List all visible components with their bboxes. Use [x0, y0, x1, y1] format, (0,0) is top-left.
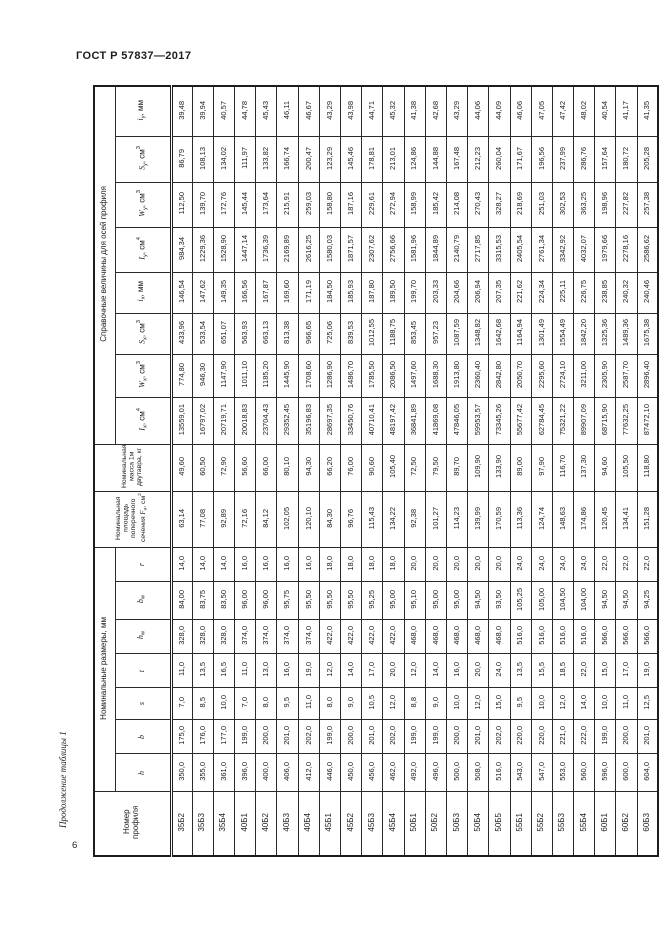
cell-bw-19: 104,00 [574, 581, 595, 619]
table-row-r: Номинальные размеры, ммr14,014,014,016,0… [94, 547, 658, 581]
cell-Wy-19: 363,25 [574, 182, 595, 227]
cell-b-2: 177,0 [213, 719, 234, 753]
cell-Sy-10: 213,01 [383, 136, 404, 182]
cell-mass-12: 79,50 [425, 444, 446, 491]
cell-h-15: 516,0 [489, 753, 510, 791]
cell-Ix-0: 13559,01 [171, 397, 192, 444]
cell-t-0: 11,0 [171, 653, 192, 687]
cell-b-10: 202,0 [383, 719, 404, 753]
table-row-Wy: Wy, см3112,50139,70172,76145,44173,64215… [94, 182, 658, 227]
cell-s-15: 15,0 [489, 687, 510, 719]
table-row-Sx: Sx, см3433,96533,54651,07563,93663,13813… [94, 313, 658, 354]
cell-h-5: 406,0 [277, 753, 298, 791]
cell-area-5: 102,05 [277, 491, 298, 547]
row-header-area: Номинальная площадь поперечного сечения … [94, 491, 171, 547]
cell-mass-9: 90,60 [362, 444, 383, 491]
cell-r-17: 24,0 [531, 547, 552, 581]
cell-hw-18: 516,0 [552, 619, 573, 653]
row-header-Iy: Iy, см4 [115, 227, 171, 272]
cell-t-13: 16,0 [446, 653, 467, 687]
cell-r-8: 18,0 [341, 547, 362, 581]
cell-Wx-9: 1785,50 [362, 354, 383, 397]
cell-h-20: 596,0 [595, 753, 616, 791]
cell-h-12: 496,0 [425, 753, 446, 791]
cell-r-13: 20,0 [446, 547, 467, 581]
cell-t-15: 24,0 [489, 653, 510, 687]
cell-iy-3: 44,78 [235, 86, 256, 136]
cell-Sy-4: 133,82 [256, 136, 277, 182]
table-row-iy: Справочные величины для осей профиляiy, … [94, 86, 658, 136]
cell-Wx-14: 2360,40 [468, 354, 489, 397]
cell-Sy-22: 205,28 [637, 136, 658, 182]
cell-t-7: 12,0 [319, 653, 340, 687]
cell-s-7: 8,0 [319, 687, 340, 719]
cell-Wy-14: 270,43 [468, 182, 489, 227]
cell-t-11: 12,0 [404, 653, 425, 687]
cell-area-14: 139,99 [468, 491, 489, 547]
row-header-profile: Номер профиля [94, 791, 171, 856]
cell-r-10: 18,0 [383, 547, 404, 581]
cell-h-3: 396,0 [235, 753, 256, 791]
cell-b-1: 176,0 [192, 719, 213, 753]
cell-Sx-13: 1087,59 [446, 313, 467, 354]
cell-Ix-12: 41869,08 [425, 397, 446, 444]
cell-area-15: 170,59 [489, 491, 510, 547]
cell-ix-13: 204,66 [446, 272, 467, 313]
cell-Ix-5: 29352,45 [277, 397, 298, 444]
cell-ix-8: 185,93 [341, 272, 362, 313]
cell-Sx-7: 725,06 [319, 313, 340, 354]
table-row-Wx: Wx, см3774,80946,301147,901011,101185,20… [94, 354, 658, 397]
cell-area-4: 84,12 [256, 491, 277, 547]
cell-Ix-22: 87472,10 [637, 397, 658, 444]
cell-Wx-7: 1286,90 [319, 354, 340, 397]
cell-b-4: 200,0 [256, 719, 277, 753]
cell-t-3: 11,0 [235, 653, 256, 687]
cell-profile-8: 45Б2 [341, 791, 362, 856]
cell-area-7: 84,30 [319, 491, 340, 547]
cell-Wy-2: 172,76 [213, 182, 234, 227]
cell-Ix-8: 33450,76 [341, 397, 362, 444]
cell-bw-16: 105,25 [510, 581, 531, 619]
cell-area-20: 120,45 [595, 491, 616, 547]
cell-b-17: 220,0 [531, 719, 552, 753]
cell-iy-13: 43,29 [446, 86, 467, 136]
cell-bw-13: 95,00 [446, 581, 467, 619]
cell-iy-7: 43,29 [319, 86, 340, 136]
cell-h-14: 508,0 [468, 753, 489, 791]
cell-Wy-4: 173,64 [256, 182, 277, 227]
cell-Sy-9: 178,81 [362, 136, 383, 182]
document-page: ГОСТ Р 57837—2017 Продолжение таблицы 1 … [0, 0, 661, 935]
row-header-ix: ix, мм [115, 272, 171, 313]
cell-hw-3: 374,0 [235, 619, 256, 653]
cell-ix-2: 149,35 [213, 272, 234, 313]
cell-r-12: 20,0 [425, 547, 446, 581]
cell-mass-4: 66,00 [256, 444, 277, 491]
cell-b-6: 202,0 [298, 719, 319, 753]
cell-mass-18: 116,70 [552, 444, 573, 491]
cell-s-4: 8,0 [256, 687, 277, 719]
cell-Wy-0: 112,50 [171, 182, 192, 227]
cell-b-14: 201,0 [468, 719, 489, 753]
table-row-t: t11,013,516,511,013,016,019,012,014,017,… [94, 653, 658, 687]
cell-ix-0: 146,54 [171, 272, 192, 313]
cell-Ix-14: 59953,57 [468, 397, 489, 444]
cell-Sx-10: 1188,75 [383, 313, 404, 354]
cell-Iy-3: 1447,14 [235, 227, 256, 272]
cell-Iy-14: 2717,85 [468, 227, 489, 272]
cell-area-10: 134,22 [383, 491, 404, 547]
cell-h-1: 355,0 [192, 753, 213, 791]
cell-iy-18: 47,42 [552, 86, 573, 136]
main-table: Справочные величины для осей профиляiy, … [93, 85, 659, 857]
cell-mass-16: 89,00 [510, 444, 531, 491]
cell-Iy-5: 2169,89 [277, 227, 298, 272]
cell-Wx-15: 2842,80 [489, 354, 510, 397]
cell-h-21: 600,0 [616, 753, 637, 791]
cell-iy-16: 46,06 [510, 86, 531, 136]
cell-bw-4: 96,00 [256, 581, 277, 619]
cell-Iy-21: 2278,16 [616, 227, 637, 272]
cell-Iy-2: 1528,90 [213, 227, 234, 272]
cell-area-17: 124,74 [531, 491, 552, 547]
cell-s-14: 12,0 [468, 687, 489, 719]
row-header-b: b [115, 719, 171, 753]
cell-bw-10: 95,00 [383, 581, 404, 619]
cell-mass-22: 118,80 [637, 444, 658, 491]
cell-profile-11: 50Б1 [404, 791, 425, 856]
cell-iy-15: 44,09 [489, 86, 510, 136]
cell-Sy-11: 124,86 [404, 136, 425, 182]
cell-ix-7: 184,50 [319, 272, 340, 313]
cell-Ix-15: 73345,26 [489, 397, 510, 444]
cell-b-18: 221,0 [552, 719, 573, 753]
cell-mass-14: 109,90 [468, 444, 489, 491]
cell-hw-22: 566,0 [637, 619, 658, 653]
cell-Sx-1: 533,54 [192, 313, 213, 354]
cell-r-15: 20,0 [489, 547, 510, 581]
cell-s-2: 10,0 [213, 687, 234, 719]
cell-Wy-8: 187,16 [341, 182, 362, 227]
cell-Iy-7: 1580,03 [319, 227, 340, 272]
cell-Sx-11: 853,45 [404, 313, 425, 354]
cell-Iy-10: 2756,66 [383, 227, 404, 272]
cell-hw-11: 468,0 [404, 619, 425, 653]
cell-r-2: 14,0 [213, 547, 234, 581]
cell-Wy-7: 158,80 [319, 182, 340, 227]
cell-Sy-7: 123,29 [319, 136, 340, 182]
cell-bw-2: 83,50 [213, 581, 234, 619]
cell-profile-12: 50Б2 [425, 791, 446, 856]
cell-Sy-2: 134,02 [213, 136, 234, 182]
cell-bw-8: 95,50 [341, 581, 362, 619]
cell-Iy-9: 2307,62 [362, 227, 383, 272]
cell-Sx-18: 1554,49 [552, 313, 573, 354]
cell-r-22: 22,0 [637, 547, 658, 581]
cell-t-21: 17,0 [616, 653, 637, 687]
row-header-Wy: Wy, см3 [115, 182, 171, 227]
cell-Wx-19: 3211,00 [574, 354, 595, 397]
cell-hw-4: 374,0 [256, 619, 277, 653]
cell-bw-7: 95,50 [319, 581, 340, 619]
cell-ix-20: 238,85 [595, 272, 616, 313]
cell-Iy-18: 3342,92 [552, 227, 573, 272]
cell-Iy-0: 984,34 [171, 227, 192, 272]
cell-s-9: 10,5 [362, 687, 383, 719]
cell-ix-21: 240,32 [616, 272, 637, 313]
cell-mass-5: 80,10 [277, 444, 298, 491]
cell-hw-19: 516,0 [574, 619, 595, 653]
cell-Sx-16: 1164,94 [510, 313, 531, 354]
cell-Sy-1: 108,13 [192, 136, 213, 182]
cell-Ix-9: 40710,41 [362, 397, 383, 444]
cell-r-18: 24,0 [552, 547, 573, 581]
cell-profile-10: 45Б4 [383, 791, 404, 856]
cell-profile-18: 55Б3 [552, 791, 573, 856]
cell-h-10: 462,0 [383, 753, 404, 791]
cell-Wy-3: 145,44 [235, 182, 256, 227]
cell-h-0: 350,0 [171, 753, 192, 791]
cell-Sy-8: 145,46 [341, 136, 362, 182]
cell-bw-9: 95,25 [362, 581, 383, 619]
table-row-b: b175,0176,0177,0199,0200,0201,0202,0199,… [94, 719, 658, 753]
cell-Wx-3: 1011,10 [235, 354, 256, 397]
cell-Ix-3: 20018,83 [235, 397, 256, 444]
cell-bw-14: 94,50 [468, 581, 489, 619]
cell-profile-22: 60Б3 [637, 791, 658, 856]
cell-h-19: 560,0 [574, 753, 595, 791]
table-continuation-caption: Продолжение таблицы 1 [58, 708, 68, 828]
cell-s-6: 11,0 [298, 687, 319, 719]
cell-profile-13: 50Б3 [446, 791, 467, 856]
cell-mass-8: 76,00 [341, 444, 362, 491]
cell-bw-18: 104,50 [552, 581, 573, 619]
cell-Sy-0: 86,79 [171, 136, 192, 182]
cell-area-2: 92,89 [213, 491, 234, 547]
cell-Sy-20: 157,64 [595, 136, 616, 182]
cell-Wx-4: 1185,20 [256, 354, 277, 397]
cell-iy-5: 46,11 [277, 86, 298, 136]
cell-Sx-0: 433,96 [171, 313, 192, 354]
cell-mass-13: 89,70 [446, 444, 467, 491]
cell-ix-4: 167,87 [256, 272, 277, 313]
cell-area-19: 174,86 [574, 491, 595, 547]
cell-b-19: 222,0 [574, 719, 595, 753]
cell-b-13: 200,0 [446, 719, 467, 753]
cell-area-16: 113,36 [510, 491, 531, 547]
cell-mass-11: 72,50 [404, 444, 425, 491]
cell-Sy-16: 171,67 [510, 136, 531, 182]
cell-Sx-12: 957,23 [425, 313, 446, 354]
cell-t-20: 15,0 [595, 653, 616, 687]
cell-Iy-19: 4032,07 [574, 227, 595, 272]
cell-b-22: 201,0 [637, 719, 658, 753]
cell-b-15: 202,0 [489, 719, 510, 753]
cell-Wy-5: 215,91 [277, 182, 298, 227]
cell-Wx-5: 1445,90 [277, 354, 298, 397]
cell-Iy-6: 2616,25 [298, 227, 319, 272]
row-header-r: r [115, 547, 171, 581]
cell-h-16: 543,0 [510, 753, 531, 791]
cell-s-5: 9,5 [277, 687, 298, 719]
cell-Wy-1: 139,70 [192, 182, 213, 227]
cell-t-9: 17,0 [362, 653, 383, 687]
cell-t-12: 14,0 [425, 653, 446, 687]
cell-bw-0: 84,00 [171, 581, 192, 619]
cell-Iy-8: 1871,57 [341, 227, 362, 272]
cell-mass-15: 133,90 [489, 444, 510, 491]
row-header-iy: iy, мм [115, 86, 171, 136]
cell-s-22: 12,5 [637, 687, 658, 719]
table-row-Ix: Ix, см413559,0116797,0220719,7120018,832… [94, 397, 658, 444]
cell-mass-6: 94,30 [298, 444, 319, 491]
cell-Wx-0: 774,80 [171, 354, 192, 397]
cell-hw-10: 422,0 [383, 619, 404, 653]
cell-Wy-21: 227,82 [616, 182, 637, 227]
cell-profile-21: 60Б2 [616, 791, 637, 856]
cell-Iy-16: 2405,54 [510, 227, 531, 272]
cell-Sx-19: 1842,20 [574, 313, 595, 354]
cell-b-9: 201,0 [362, 719, 383, 753]
cell-Wx-17: 2295,60 [531, 354, 552, 397]
cell-bw-15: 93,50 [489, 581, 510, 619]
cell-Ix-16: 55677,42 [510, 397, 531, 444]
row-header-hw: hw [115, 619, 171, 653]
cell-b-7: 199,0 [319, 719, 340, 753]
cell-Wx-13: 1913,80 [446, 354, 467, 397]
cell-mass-17: 97,90 [531, 444, 552, 491]
cell-hw-5: 374,0 [277, 619, 298, 653]
cell-Wx-16: 2050,70 [510, 354, 531, 397]
cell-area-11: 92,38 [404, 491, 425, 547]
cell-s-13: 10,0 [446, 687, 467, 719]
table-row-Sy: Sy, см386,79108,13134,02111,97133,82166,… [94, 136, 658, 182]
cell-profile-2: 35Б4 [213, 791, 234, 856]
row-header-s: s [115, 687, 171, 719]
cell-iy-22: 41,35 [637, 86, 658, 136]
cell-Sx-3: 563,93 [235, 313, 256, 354]
cell-r-0: 14,0 [171, 547, 192, 581]
cell-r-1: 14,0 [192, 547, 213, 581]
cell-Iy-12: 1844,89 [425, 227, 446, 272]
cell-b-12: 199,0 [425, 719, 446, 753]
cell-s-12: 9,0 [425, 687, 446, 719]
page-number: 6 [72, 840, 77, 851]
cell-Wx-6: 1708,60 [298, 354, 319, 397]
cell-b-20: 199,0 [595, 719, 616, 753]
cell-hw-9: 422,0 [362, 619, 383, 653]
cell-b-8: 200,0 [341, 719, 362, 753]
cell-profile-1: 35Б3 [192, 791, 213, 856]
cell-Ix-4: 23704,43 [256, 397, 277, 444]
table-row-h: h350,0355,0361,0396,0400,0406,0412,0446,… [94, 753, 658, 791]
cell-Wy-11: 158,99 [404, 182, 425, 227]
cell-profile-16: 55Б1 [510, 791, 531, 856]
cell-h-2: 361,0 [213, 753, 234, 791]
cell-mass-7: 66,20 [319, 444, 340, 491]
cell-Ix-17: 62784,45 [531, 397, 552, 444]
cell-bw-21: 94,50 [616, 581, 637, 619]
cell-mass-19: 137,30 [574, 444, 595, 491]
cell-h-9: 456,0 [362, 753, 383, 791]
table-row-Iy: Iy, см4984,341229,361528,901447,141736,3… [94, 227, 658, 272]
cell-mass-2: 72,90 [213, 444, 234, 491]
cell-Sy-15: 260,04 [489, 136, 510, 182]
cell-Sx-5: 813,38 [277, 313, 298, 354]
cell-Sy-17: 196,56 [531, 136, 552, 182]
cell-bw-3: 96,00 [235, 581, 256, 619]
cell-r-19: 24,0 [574, 547, 595, 581]
cell-r-9: 18,0 [362, 547, 383, 581]
cell-t-18: 18,5 [552, 653, 573, 687]
row-header-mass: Номинальная масса 1м двутавра, кг [94, 444, 171, 491]
cell-iy-21: 41,17 [616, 86, 637, 136]
cell-Sx-2: 651,07 [213, 313, 234, 354]
cell-Iy-11: 1581,96 [404, 227, 425, 272]
cell-ix-16: 221,62 [510, 272, 531, 313]
cell-Wy-15: 328,27 [489, 182, 510, 227]
cell-Wy-20: 198,96 [595, 182, 616, 227]
cell-iy-17: 47,05 [531, 86, 552, 136]
cell-h-4: 400,0 [256, 753, 277, 791]
cell-s-17: 10,0 [531, 687, 552, 719]
cell-Wx-8: 1486,70 [341, 354, 362, 397]
cell-profile-14: 50Б4 [468, 791, 489, 856]
cell-t-8: 14,0 [341, 653, 362, 687]
cell-hw-14: 468,0 [468, 619, 489, 653]
cell-Sx-17: 1301,49 [531, 313, 552, 354]
cell-Sy-13: 167,48 [446, 136, 467, 182]
cell-ix-9: 187,80 [362, 272, 383, 313]
cell-t-4: 13,0 [256, 653, 277, 687]
cell-Wx-21: 2587,70 [616, 354, 637, 397]
cell-ix-19: 226,75 [574, 272, 595, 313]
cell-r-16: 24,0 [510, 547, 531, 581]
cell-profile-7: 45Б1 [319, 791, 340, 856]
cell-iy-10: 45,32 [383, 86, 404, 136]
cell-Sy-6: 200,47 [298, 136, 319, 182]
cell-bw-20: 94,50 [595, 581, 616, 619]
cell-profile-4: 40Б2 [256, 791, 277, 856]
cell-mass-10: 105,40 [383, 444, 404, 491]
cell-ix-1: 147,62 [192, 272, 213, 313]
cell-iy-9: 44,71 [362, 86, 383, 136]
cell-Wy-18: 302,53 [552, 182, 573, 227]
cell-area-22: 151,28 [637, 491, 658, 547]
row-header-Wx: Wx, см3 [115, 354, 171, 397]
cell-mass-21: 105,50 [616, 444, 637, 491]
table-row-hw: hw328,0328,0328,0374,0374,0374,0374,0422… [94, 619, 658, 653]
table-row-profile: Номер профиля35Б235Б335Б440Б140Б240Б340Б… [94, 791, 658, 856]
cell-h-11: 492,0 [404, 753, 425, 791]
cell-profile-5: 40Б3 [277, 791, 298, 856]
group-header-dimensions: Номинальные размеры, мм [94, 547, 115, 791]
cell-Wx-22: 2896,40 [637, 354, 658, 397]
cell-Sy-14: 212,23 [468, 136, 489, 182]
cell-hw-1: 328,0 [192, 619, 213, 653]
cell-Ix-13: 47846,05 [446, 397, 467, 444]
table-row-ix: ix, мм146,54147,62149,35166,56167,87169,… [94, 272, 658, 313]
cell-area-6: 120,10 [298, 491, 319, 547]
cell-r-11: 20,0 [404, 547, 425, 581]
cell-t-6: 19,0 [298, 653, 319, 687]
cell-Wx-11: 1497,60 [404, 354, 425, 397]
cell-s-20: 10,0 [595, 687, 616, 719]
row-header-Ix: Ix, см4 [115, 397, 171, 444]
cell-t-5: 16,0 [277, 653, 298, 687]
cell-Sx-14: 1348,82 [468, 313, 489, 354]
